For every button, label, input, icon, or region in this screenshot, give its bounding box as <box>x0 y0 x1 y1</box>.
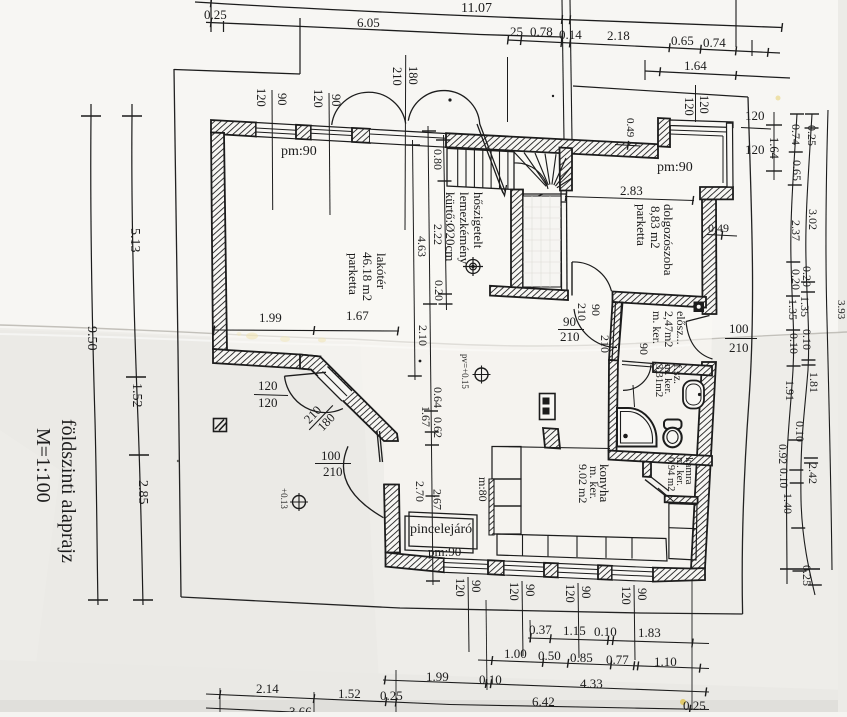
svg-text:0.25: 0.25 <box>380 688 403 703</box>
svg-text:90: 90 <box>523 584 537 597</box>
svg-text:6.42: 6.42 <box>532 694 555 709</box>
svg-text:pincelejáró: pincelejáró <box>410 522 472 537</box>
svg-text:3.02: 3.02 <box>806 209 820 230</box>
svg-text:0.25: 0.25 <box>805 125 819 146</box>
svg-text:0.37: 0.37 <box>529 622 552 637</box>
svg-text:120: 120 <box>697 95 711 114</box>
svg-text:90: 90 <box>579 586 593 599</box>
svg-text:2.22: 2.22 <box>431 224 445 245</box>
svg-text:90: 90 <box>275 93 289 106</box>
svg-text:210: 210 <box>598 335 612 353</box>
svg-text:0.74: 0.74 <box>789 124 803 145</box>
svg-text:0.64: 0.64 <box>431 387 445 408</box>
svg-text:0.65: 0.65 <box>790 160 804 181</box>
svg-text:2.83: 2.83 <box>620 183 643 198</box>
svg-text:0.10: 0.10 <box>787 333 801 354</box>
svg-text:90: 90 <box>637 343 651 355</box>
svg-text:lakótér: lakótér <box>374 253 389 290</box>
svg-text:0.50: 0.50 <box>538 648 561 663</box>
svg-text:1.99: 1.99 <box>426 669 449 684</box>
svg-text:+0.13: +0.13 <box>279 488 289 509</box>
svg-text:0.74: 0.74 <box>703 35 726 50</box>
svg-text:210: 210 <box>560 329 580 344</box>
svg-text:1.67: 1.67 <box>419 406 433 427</box>
svg-text:2.67: 2.67 <box>431 489 445 510</box>
svg-text:120: 120 <box>507 582 521 601</box>
svg-text:11.07: 11.07 <box>461 1 492 16</box>
svg-text:2.85: 2.85 <box>135 480 150 505</box>
svg-text:parketta: parketta <box>346 253 361 295</box>
svg-text:0.94 m2: 0.94 m2 <box>665 457 676 491</box>
svg-text:3.93: 3.93 <box>835 300 847 320</box>
svg-text:210: 210 <box>390 67 404 86</box>
svg-text:120: 120 <box>745 108 765 123</box>
svg-text:0.25: 0.25 <box>204 7 227 22</box>
svg-text:1.40: 1.40 <box>781 493 795 514</box>
svg-text:m. ker.: m. ker. <box>650 311 664 344</box>
svg-text:0.10: 0.10 <box>777 468 789 488</box>
svg-text:90: 90 <box>589 304 603 316</box>
svg-text:parketta: parketta <box>634 204 649 246</box>
svg-text:0.20: 0.20 <box>800 266 814 287</box>
svg-text:1.99: 1.99 <box>259 310 282 325</box>
svg-text:1.52: 1.52 <box>338 686 361 701</box>
svg-text:2.10: 2.10 <box>416 325 430 346</box>
svg-text:120: 120 <box>619 586 633 605</box>
svg-text:0.65: 0.65 <box>671 33 694 48</box>
svg-text:2.18: 2.18 <box>607 28 630 43</box>
svg-text:0.92: 0.92 <box>776 444 788 464</box>
svg-text:180: 180 <box>406 66 420 85</box>
svg-text:4.63: 4.63 <box>415 236 429 257</box>
svg-text:120: 120 <box>682 97 696 116</box>
svg-text:90: 90 <box>329 94 343 107</box>
svg-text:2.37: 2.37 <box>789 220 803 241</box>
svg-text:1.83: 1.83 <box>638 625 661 640</box>
svg-text:2.42: 2.42 <box>806 463 820 484</box>
svg-text:0.85: 0.85 <box>570 650 593 665</box>
svg-text:2.70: 2.70 <box>413 481 427 502</box>
svg-text:1.91: 1.91 <box>783 380 797 401</box>
svg-text:1.52: 1.52 <box>129 383 144 408</box>
svg-text:0.10: 0.10 <box>594 624 617 639</box>
svg-text:120: 120 <box>745 142 765 157</box>
svg-text:1.67: 1.67 <box>346 308 369 323</box>
svg-text:lemezkémény: lemezkémény <box>457 192 472 265</box>
svg-text:90: 90 <box>635 588 649 601</box>
svg-text:120: 120 <box>311 89 325 108</box>
svg-text:100: 100 <box>321 448 341 463</box>
svg-text:90: 90 <box>469 580 483 593</box>
svg-text:pm:90: pm:90 <box>657 160 693 175</box>
svg-text:0.25: 0.25 <box>683 698 706 712</box>
svg-text:1.64: 1.64 <box>684 58 707 73</box>
svg-text:1.00: 1.00 <box>504 646 527 661</box>
svg-text:1.81: 1.81 <box>807 372 821 393</box>
svg-text:pm:90: pm:90 <box>281 144 317 159</box>
svg-text:0.10: 0.10 <box>800 329 814 350</box>
svg-text:1.15: 1.15 <box>563 623 586 638</box>
svg-text:8,83 m2: 8,83 m2 <box>648 206 663 249</box>
svg-text:210: 210 <box>729 340 749 355</box>
svg-text:120: 120 <box>563 584 577 603</box>
svg-text:0.78: 0.78 <box>530 24 553 39</box>
svg-text:5.13: 5.13 <box>127 228 142 253</box>
svg-text:0.10: 0.10 <box>793 421 807 442</box>
svg-text:210: 210 <box>323 464 343 479</box>
svg-text:hőszigetelt: hőszigetelt <box>471 192 486 249</box>
svg-text:1.10: 1.10 <box>654 654 677 669</box>
svg-text:0.80: 0.80 <box>431 149 445 170</box>
svg-text:3.66: 3.66 <box>289 704 312 712</box>
svg-text:4.33: 4.33 <box>580 676 603 691</box>
svg-text:100: 100 <box>729 321 749 336</box>
svg-text:m:80: m:80 <box>476 477 490 502</box>
svg-text:0.10: 0.10 <box>479 672 502 687</box>
svg-text:210: 210 <box>575 303 589 321</box>
svg-text:földszinti alaprajz: földszinti alaprajz <box>57 419 79 563</box>
svg-text:0.20: 0.20 <box>432 280 446 301</box>
svg-text:M=1:100: M=1:100 <box>32 428 54 503</box>
svg-text:0.25: 0.25 <box>800 565 814 586</box>
svg-text:0.49: 0.49 <box>708 221 729 235</box>
svg-text:pv=+0.15: pv=+0.15 <box>460 354 470 389</box>
svg-text:120: 120 <box>258 395 278 410</box>
svg-text:0.77: 0.77 <box>606 652 629 667</box>
svg-text:46.18 m2: 46.18 m2 <box>360 252 375 301</box>
svg-text:90: 90 <box>563 314 576 329</box>
svg-text:1.35: 1.35 <box>798 296 812 317</box>
svg-text:9.50: 9.50 <box>84 326 99 351</box>
svg-text:1.35: 1.35 <box>786 299 800 320</box>
svg-text:9.02 m2: 9.02 m2 <box>576 464 590 503</box>
svg-text:6.05: 6.05 <box>357 15 380 30</box>
svg-text:120: 120 <box>254 88 268 107</box>
svg-text:120: 120 <box>453 578 467 597</box>
svg-text:0.49: 0.49 <box>624 118 636 138</box>
svg-text:3,31m2: 3,31m2 <box>653 364 665 397</box>
svg-text:1.64: 1.64 <box>767 137 781 160</box>
svg-text:120: 120 <box>258 378 278 393</box>
svg-text:25: 25 <box>510 24 523 39</box>
svg-text:2.14: 2.14 <box>256 681 279 696</box>
